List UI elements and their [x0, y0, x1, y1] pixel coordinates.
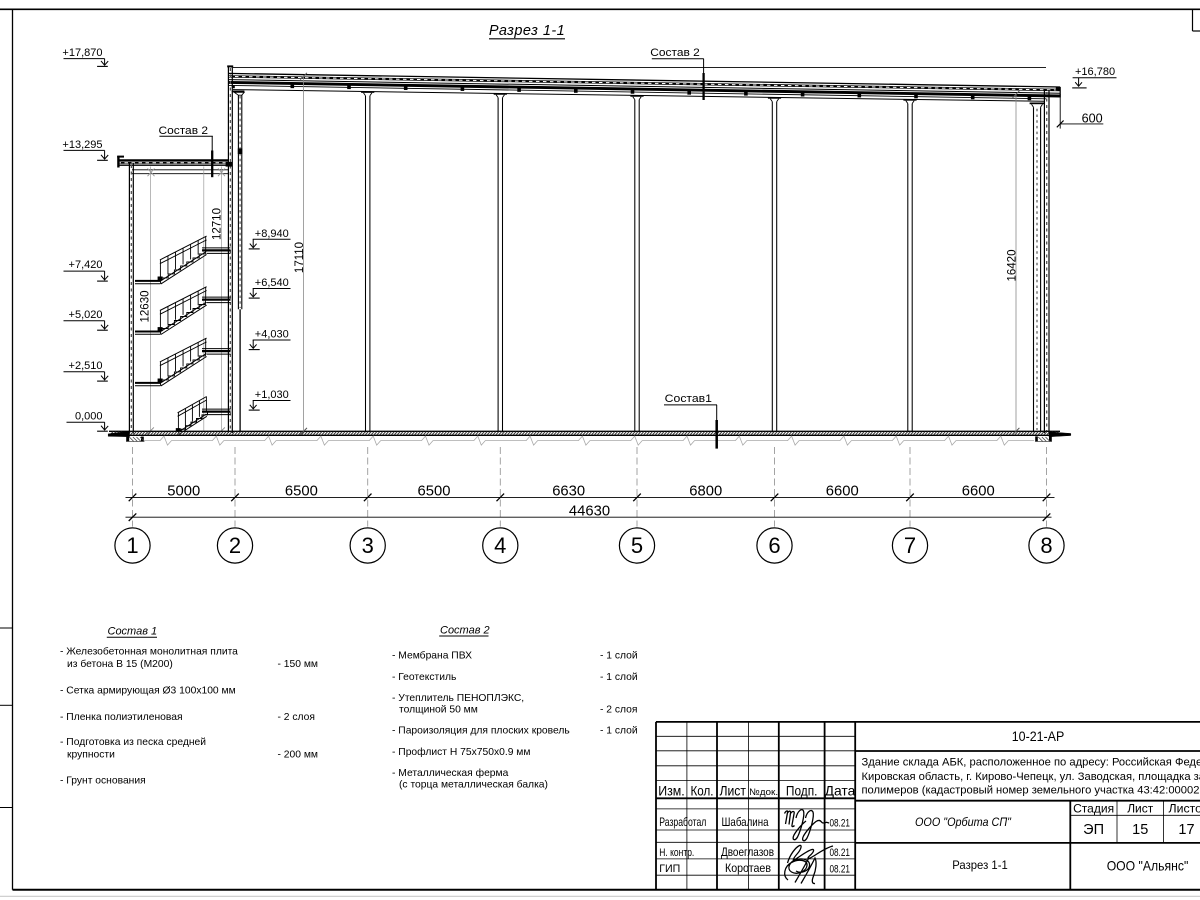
- svg-text:- Мембрана ПВХ: - Мембрана ПВХ: [392, 649, 472, 661]
- svg-text:Разрез 1-1: Разрез 1-1: [489, 23, 565, 39]
- svg-text:- Металлическая ферма: - Металлическая ферма: [392, 767, 509, 779]
- svg-text:+16,780: +16,780: [1075, 66, 1115, 78]
- svg-text:6600: 6600: [826, 483, 859, 499]
- svg-text:крупности: крупности: [67, 749, 115, 760]
- svg-text:Состав 2: Состав 2: [159, 125, 209, 137]
- svg-text:17110: 17110: [294, 242, 306, 273]
- svg-text:+8,940: +8,940: [255, 228, 289, 240]
- svg-text:3: 3: [362, 533, 374, 558]
- svg-text:Здание склада АБК, расположенн: Здание склада АБК, расположенное по адре…: [862, 756, 1200, 768]
- svg-text:Коротаев: Коротаев: [725, 861, 771, 875]
- svg-text:ООО "Альянс": ООО "Альянс": [1107, 858, 1189, 874]
- svg-text:Кировская область, г. Кирово-Ч: Кировская область, г. Кирово-Чепецк, ул.…: [862, 771, 1200, 783]
- svg-text:Состав 2: Состав 2: [650, 47, 700, 59]
- svg-text:+13,295: +13,295: [62, 139, 102, 151]
- svg-text:7: 7: [904, 533, 916, 558]
- svg-text:8: 8: [1040, 533, 1052, 558]
- svg-text:0,000: 0,000: [75, 410, 103, 422]
- svg-text:Состав1: Состав1: [665, 393, 712, 405]
- svg-text:Стадия: Стадия: [1073, 801, 1114, 815]
- svg-text:Н. контр.: Н. контр.: [659, 847, 694, 859]
- svg-text:+6,540: +6,540: [255, 277, 289, 289]
- svg-text:+4,030: +4,030: [255, 329, 289, 341]
- svg-text:- 1 слой: - 1 слой: [600, 672, 638, 683]
- svg-text:12630: 12630: [140, 291, 152, 323]
- svg-text:Кол.: Кол.: [691, 782, 714, 798]
- svg-text:- Железобетонная монолитная п: - Железобетонная монолитная плита: [60, 646, 238, 658]
- svg-text:Дата: Дата: [825, 782, 856, 798]
- svg-text:4: 4: [494, 533, 506, 558]
- svg-text:полимеров (кадастровый номер з: полимеров (кадастровый номер земельного …: [862, 784, 1200, 796]
- svg-text:- Пленка полиэтиленовая: - Пленка полиэтиленовая: [60, 712, 183, 723]
- svg-text:из бетона В 15 (М200): из бетона В 15 (М200): [67, 658, 173, 670]
- svg-text:1: 1: [126, 533, 138, 558]
- svg-text:Состав 1: Состав 1: [108, 626, 158, 638]
- svg-text:- 1 слой: - 1 слой: [600, 650, 638, 661]
- svg-text:- Утеплитель ПЕНОПЛЭКС,: - Утеплитель ПЕНОПЛЭКС,: [392, 693, 524, 704]
- svg-text:- 200 мм: - 200 мм: [278, 749, 319, 760]
- svg-text:- Подготовка из песка средней: - Подготовка из песка средней: [60, 737, 206, 748]
- svg-text:08.21: 08.21: [829, 863, 850, 875]
- svg-text:- 2 слоя: - 2 слоя: [600, 704, 637, 715]
- svg-text:+7,420: +7,420: [69, 259, 103, 271]
- svg-text:6500: 6500: [418, 483, 451, 499]
- svg-text:5: 5: [631, 533, 643, 558]
- svg-text:- Геотекстиль: - Геотекстиль: [392, 672, 456, 683]
- svg-text:600: 600: [1082, 112, 1103, 126]
- svg-text:+1,030: +1,030: [255, 389, 289, 401]
- svg-text:Изм.: Изм.: [658, 782, 685, 798]
- svg-text:44630: 44630: [569, 503, 610, 519]
- svg-text:10-21-АР: 10-21-АР: [1012, 728, 1065, 744]
- svg-text:5000: 5000: [167, 483, 200, 499]
- svg-text:ЭП: ЭП: [1083, 822, 1104, 838]
- svg-text:- 150 мм: - 150 мм: [278, 659, 319, 670]
- svg-text:2: 2: [229, 533, 241, 558]
- svg-text:6630: 6630: [552, 483, 585, 499]
- svg-text:Шабалина: Шабалина: [722, 815, 769, 829]
- svg-text:- Сетка армирующая Ø3 100х100: - Сетка армирующая Ø3 100х100 мм: [60, 686, 236, 697]
- svg-text:ГИП: ГИП: [659, 863, 680, 875]
- svg-text:12710: 12710: [212, 208, 224, 240]
- svg-text:Лист: Лист: [1127, 801, 1153, 815]
- svg-text:15: 15: [1132, 822, 1148, 838]
- svg-text:Разрез 1-1: Разрез 1-1: [952, 858, 1008, 872]
- svg-text:17: 17: [1178, 822, 1194, 838]
- svg-text:- Грунт основания: - Грунт основания: [60, 776, 146, 787]
- svg-text:Листов: Листов: [1169, 801, 1200, 815]
- svg-text:ООО "Орбита СП": ООО "Орбита СП": [915, 816, 1012, 829]
- svg-text:6: 6: [768, 533, 780, 558]
- svg-text:- Профлист Н 75х750х0.9 мм: - Профлист Н 75х750х0.9 мм: [392, 746, 530, 758]
- svg-text:(с торца металлическая балка): (с торца металлическая балка): [399, 778, 548, 790]
- svg-text:- Пароизоляция для плоских кро: - Пароизоляция для плоских кровель: [392, 726, 570, 737]
- svg-text:Состав 2: Состав 2: [440, 624, 490, 636]
- svg-text:- 2 слоя: - 2 слоя: [278, 712, 315, 723]
- svg-text:+17,870: +17,870: [62, 47, 102, 59]
- svg-text:+2,510: +2,510: [69, 360, 103, 372]
- svg-text:Подп.: Подп.: [786, 782, 818, 798]
- svg-text:№док.: №док.: [749, 786, 778, 797]
- svg-text:+5,020: +5,020: [69, 309, 103, 321]
- svg-text:толщиной 50 мм: толщиной 50 мм: [399, 704, 478, 715]
- svg-text:6800: 6800: [689, 483, 722, 499]
- svg-text:08.21: 08.21: [829, 847, 850, 859]
- svg-text:08.21: 08.21: [829, 817, 850, 829]
- svg-text:6600: 6600: [962, 483, 995, 499]
- svg-text:Лист: Лист: [719, 782, 746, 798]
- svg-text:Разработал: Разработал: [659, 816, 706, 829]
- svg-text:- 1 слой: - 1 слой: [600, 726, 638, 737]
- svg-text:Двоеглазов: Двоеглазов: [721, 845, 774, 859]
- svg-text:16420: 16420: [1007, 250, 1019, 282]
- svg-text:6500: 6500: [285, 483, 318, 499]
